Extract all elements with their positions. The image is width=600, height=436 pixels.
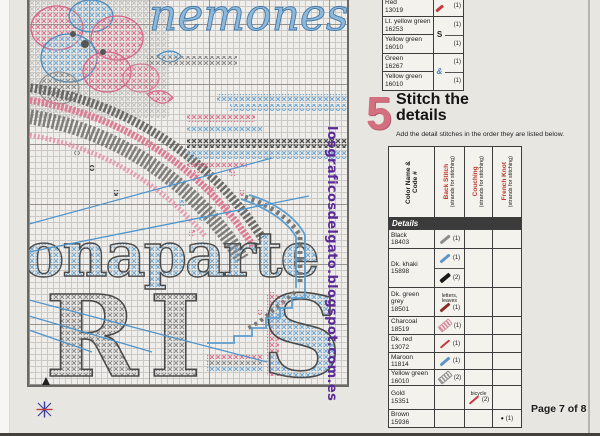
strand-count: (1) bbox=[453, 305, 460, 311]
strand-count: (1) bbox=[445, 35, 463, 53]
color-key-group: Red 13019 (1) bbox=[383, 0, 463, 17]
strand-count: (1) bbox=[453, 358, 460, 364]
letter-r: R bbox=[45, 272, 139, 385]
header-name-line1: Color Name & bbox=[405, 161, 412, 204]
backstitch-symbol-pink-hatched bbox=[437, 319, 452, 333]
backstitch-symbol-blue bbox=[439, 253, 450, 263]
backstitch-symbol-blue bbox=[439, 356, 450, 366]
color-code: 16267 bbox=[385, 63, 431, 71]
color-name: Charcoal bbox=[391, 318, 432, 326]
color-code: 11814 bbox=[391, 361, 432, 369]
table-row: Gold15351 bicycle (2) bbox=[389, 385, 521, 409]
french-knot-sub: (strands for stitching) bbox=[508, 156, 514, 207]
color-name: Brown bbox=[391, 411, 432, 419]
strand-count: (2) bbox=[453, 275, 460, 281]
table-row: Dk. red13072 (1) bbox=[389, 334, 521, 352]
strand-count: (1) bbox=[453, 236, 460, 242]
details-section-band: Details bbox=[389, 217, 521, 229]
page-left-margin bbox=[0, 0, 10, 436]
table-row: Charcoal18519 (1) bbox=[389, 316, 521, 334]
cross-stitch-chart-grid: nemones bbox=[27, 0, 349, 387]
backstitch-symbol-red bbox=[440, 339, 450, 348]
color-code: 16010 bbox=[385, 44, 431, 52]
color-name-cell: Red 13019 bbox=[383, 0, 433, 16]
table-row: Dk. green grey18501 letters, leaves (1) bbox=[389, 287, 521, 316]
strand-count: (1) bbox=[445, 17, 463, 35]
backstitch-symbol-grey bbox=[439, 234, 450, 244]
strand-count: (1) bbox=[506, 416, 513, 422]
color-code: 15936 bbox=[391, 419, 432, 427]
french-knot-symbol: • bbox=[501, 416, 504, 422]
header-name-line2: Code # bbox=[412, 161, 419, 204]
color-key-table: Red 13019 (1) Lt. yellow green 16253 Yel… bbox=[382, 0, 464, 91]
strand-count: (1) bbox=[445, 0, 463, 16]
stitch-symbol-s: S bbox=[434, 31, 445, 39]
details-table-header: Color Name & Code # Back Stitch (strands… bbox=[389, 147, 521, 217]
color-name: Dk. red bbox=[391, 336, 432, 344]
table-row: Dk. khaki15898 (1) (2) bbox=[389, 248, 521, 287]
color-code: 18519 bbox=[391, 326, 432, 334]
table-row: Maroon11814 (1) bbox=[389, 352, 521, 369]
color-name: Maroon bbox=[391, 354, 432, 362]
details-stitch-table: Color Name & Code # Back Stitch (strands… bbox=[388, 146, 522, 428]
color-code: 13072 bbox=[391, 344, 432, 352]
chart-script-word: nemones bbox=[149, 0, 347, 41]
color-code: 15351 bbox=[391, 398, 432, 406]
watermark-text: losgraficosdelgato.blogspot.com.es bbox=[324, 126, 338, 401]
step-title: Stitch the details bbox=[396, 92, 469, 124]
color-name: Yellow green bbox=[385, 36, 431, 44]
strand-count: (2) bbox=[482, 397, 489, 403]
color-name-cell: Yellow green 16010 bbox=[383, 35, 433, 53]
step-number: 5 bbox=[366, 92, 392, 134]
color-code: 18501 bbox=[391, 306, 432, 314]
stitch-symbol-red-knot bbox=[434, 3, 445, 11]
strand-count: (1) bbox=[453, 255, 460, 261]
backstitch-symbol-grey-hatched bbox=[437, 371, 452, 385]
horizontal-stitch-bands bbox=[147, 56, 347, 168]
chart-artwork: nemones bbox=[29, 0, 347, 385]
table-row: Yellow green16010 (2) bbox=[389, 369, 521, 385]
color-name: Yellow green bbox=[391, 370, 432, 378]
page-edge-line bbox=[588, 0, 590, 436]
color-name: Dk. green grey bbox=[391, 291, 432, 306]
color-name: Dk. khaki bbox=[391, 261, 432, 269]
color-name: Green bbox=[385, 55, 431, 63]
step-title-line1: Stitch the bbox=[396, 92, 469, 108]
header-french-knot: French Knot (strands for stitching) bbox=[493, 147, 521, 217]
letter-i: I bbox=[149, 272, 201, 385]
color-name: Black bbox=[391, 232, 432, 240]
strand-count: (2) bbox=[454, 375, 461, 381]
page-number: Page 7 of 8 bbox=[531, 403, 586, 415]
strand-count: (1) bbox=[445, 72, 463, 90]
couching-sub: (strands for stitching) bbox=[479, 156, 485, 207]
table-row: Black18403 (1) bbox=[389, 229, 521, 248]
color-name: Yellow green bbox=[385, 73, 431, 81]
color-name-cell: Green 16267 bbox=[383, 54, 433, 72]
color-key-group: Green 16267 Yellow green 16010 & (1) (1) bbox=[383, 54, 463, 90]
header-color-name: Color Name & Code # bbox=[389, 147, 435, 217]
french-knot-label: French Knot bbox=[501, 156, 508, 207]
color-code: 13019 bbox=[385, 7, 431, 15]
color-key-group: Lt. yellow green 16253 Yellow green 1601… bbox=[383, 17, 463, 54]
table-row: Brown15936 •(1) bbox=[389, 409, 521, 427]
couching-symbol-red bbox=[469, 396, 479, 405]
color-code: 16010 bbox=[391, 378, 432, 386]
step-title-line2: details bbox=[396, 108, 469, 124]
color-name: Lt. yellow green bbox=[385, 18, 431, 26]
step-subtitle: Add the detail stitches in the order the… bbox=[396, 131, 571, 139]
color-code: 18403 bbox=[391, 239, 432, 247]
color-name: Gold bbox=[391, 390, 432, 398]
star-stitch-symbol bbox=[36, 401, 53, 418]
back-stitch-label: Back Stitch bbox=[443, 156, 450, 207]
color-name-cell: Lt. yellow green 16253 bbox=[383, 17, 433, 35]
color-code: 16253 bbox=[385, 26, 431, 34]
header-back-stitch: Back Stitch (strands for stitching) bbox=[435, 147, 465, 217]
stitch-symbol-ampersand: & bbox=[434, 68, 445, 76]
couching-label: Couching bbox=[472, 156, 479, 207]
strand-count: (1) bbox=[453, 341, 460, 347]
back-stitch-sub: (strands for stitching) bbox=[450, 156, 456, 207]
strand-count: (1) bbox=[454, 323, 461, 329]
backstitch-symbol-darkred bbox=[439, 302, 450, 312]
header-couching: Couching (strands for stitching) bbox=[465, 147, 493, 217]
color-code: 15898 bbox=[391, 268, 432, 276]
strand-count: (1) bbox=[445, 54, 463, 72]
backstitch-symbol-black bbox=[439, 273, 450, 283]
